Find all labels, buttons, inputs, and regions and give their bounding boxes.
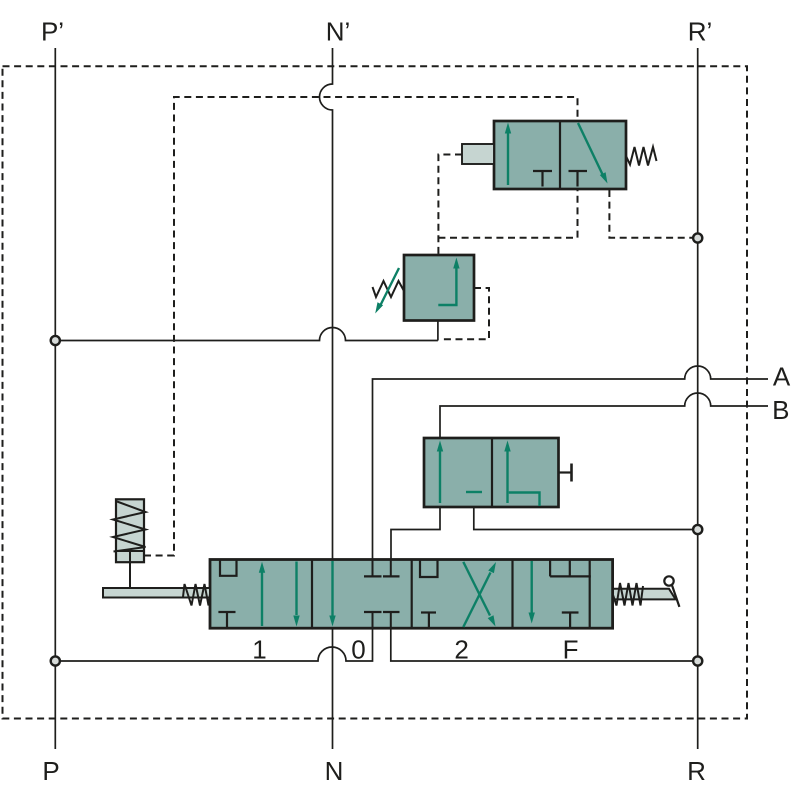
svg-text:N: N — [325, 756, 344, 786]
svg-text:R: R — [687, 756, 706, 786]
svg-text:F: F — [563, 635, 579, 665]
svg-text:B: B — [772, 395, 789, 425]
svg-text:A: A — [773, 362, 791, 392]
svg-text:N’: N’ — [326, 17, 351, 47]
svg-text:1: 1 — [252, 635, 266, 665]
svg-text:R’: R’ — [688, 17, 713, 47]
svg-text:0: 0 — [351, 635, 365, 665]
svg-text:2: 2 — [454, 635, 468, 665]
svg-text:P: P — [42, 756, 59, 786]
svg-text:P’: P’ — [41, 17, 64, 47]
